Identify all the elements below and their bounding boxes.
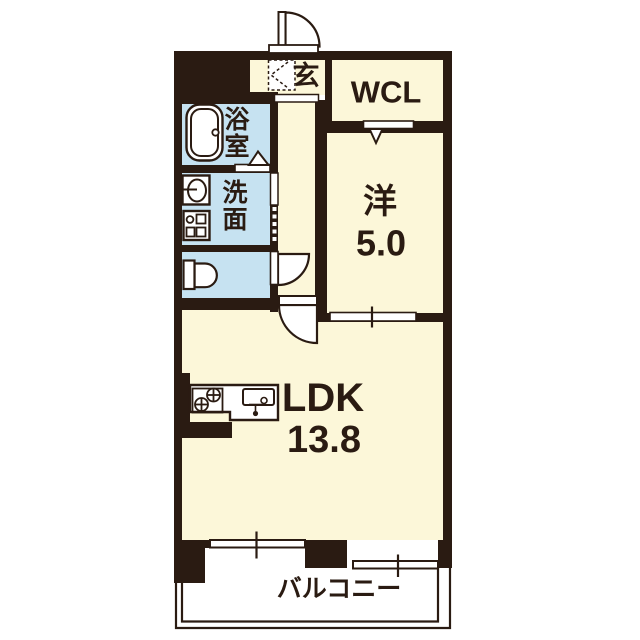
genkan-label: 玄 — [293, 60, 320, 91]
entrance-door-swing-icon — [286, 13, 320, 47]
washroom-label-char1: 洗 — [222, 179, 247, 207]
ldk-label: LDK — [282, 376, 364, 420]
western-room-size: 5.0 — [356, 223, 406, 264]
bathtub-icon — [187, 105, 223, 161]
toilet-tank — [184, 261, 195, 290]
wall-wash-toilet — [182, 245, 270, 252]
wall-top-left-mass — [174, 51, 250, 104]
right-window — [353, 561, 438, 569]
toilet-icon — [184, 261, 217, 290]
wall-toilet-ldk — [174, 298, 278, 310]
western-room-label: 洋 — [363, 183, 397, 221]
wall-bottom-right-block — [438, 540, 452, 568]
wall-kitchen-left — [174, 373, 190, 422]
genkan-step — [275, 95, 319, 103]
washing-machine-pan-icon — [184, 211, 210, 240]
ldk-size: 13.8 — [287, 419, 361, 461]
wall-kitchen-under — [174, 422, 232, 438]
washroom-sliding-door — [271, 173, 279, 205]
wcl-label: WCL — [351, 75, 422, 110]
wall-bottom-left-block — [174, 540, 205, 583]
balcony-label: バルコニー — [277, 575, 402, 603]
washbasin-icon — [183, 176, 210, 205]
toilet-bowl — [195, 264, 217, 288]
toilet-door-leaf — [271, 252, 279, 285]
ldk-door-leaf — [279, 296, 317, 305]
bathroom-label-char2: 室 — [224, 132, 249, 161]
wall-left — [174, 51, 182, 583]
floorplan-drawing: 玄 WCL 浴 室 洗 面 洋 5.0 LDK 13.8 バルコニー — [0, 0, 640, 640]
bathroom-label-char1: 浴 — [224, 106, 250, 134]
washroom-label-char2: 面 — [222, 206, 247, 234]
floorplan-page: 玄 WCL 浴 室 洗 面 洋 5.0 LDK 13.8 バルコニー — [0, 0, 640, 640]
wall-hallway-right — [315, 100, 327, 322]
wcl-door-bar — [364, 121, 414, 129]
shoe-cabinet-icon — [269, 60, 296, 90]
wall-bottom-mid-block — [305, 540, 347, 568]
entrance-threshold — [269, 45, 318, 53]
entrance-door-leaf — [279, 12, 286, 48]
bathtub-knob — [212, 129, 218, 135]
